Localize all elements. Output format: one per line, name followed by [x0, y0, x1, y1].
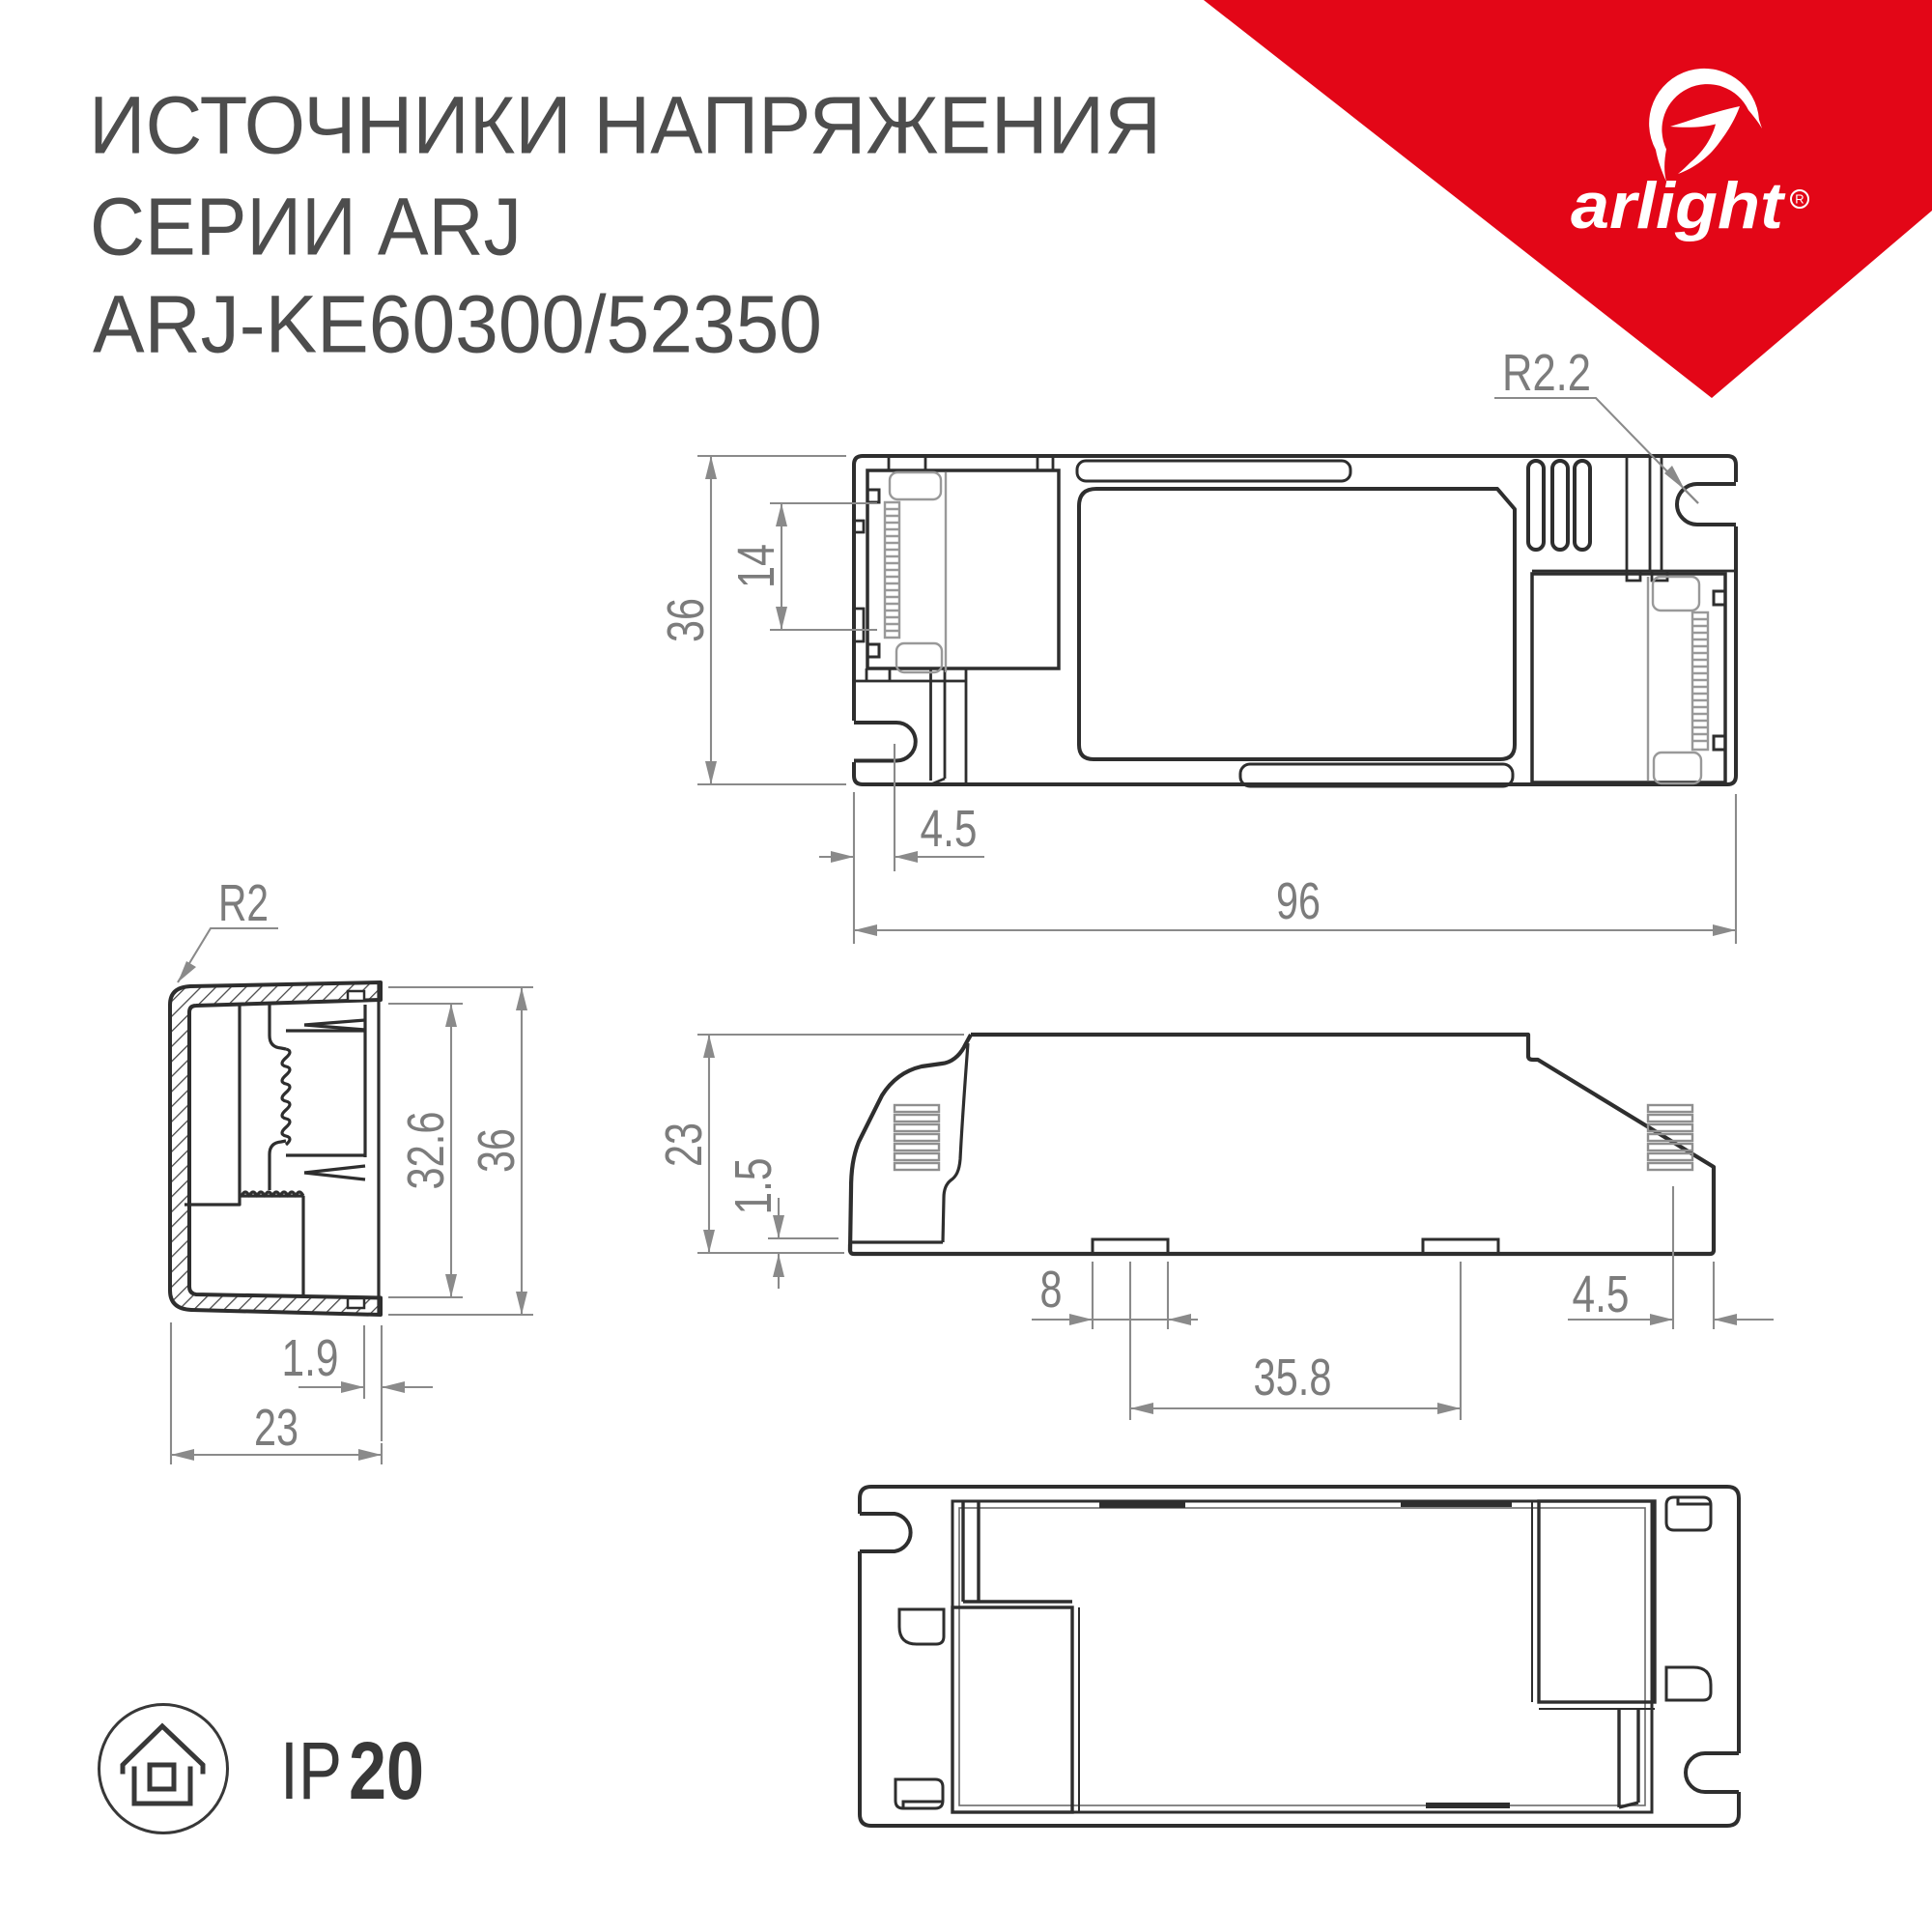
svg-text:ARJ-KE60300/52350: ARJ-KE60300/52350	[93, 279, 822, 370]
svg-text:35.8: 35.8	[1254, 1349, 1332, 1406]
svg-text:ИСТОЧНИКИ НАПРЯЖЕНИЯ: ИСТОЧНИКИ НАПРЯЖЕНИЯ	[89, 80, 1161, 171]
svg-text:4.5: 4.5	[1573, 1265, 1630, 1323]
svg-text:IP: IP	[280, 1725, 342, 1816]
svg-text:8: 8	[1040, 1261, 1063, 1319]
svg-text:R2: R2	[218, 874, 269, 932]
svg-text:32.6: 32.6	[397, 1112, 455, 1190]
svg-text:arlight: arlight	[1571, 169, 1785, 242]
svg-text:1.9: 1.9	[282, 1329, 339, 1387]
svg-text:СЕРИИ ARJ: СЕРИИ ARJ	[90, 182, 522, 272]
svg-text:R: R	[1795, 192, 1804, 207]
svg-text:23: 23	[254, 1399, 298, 1457]
svg-text:20: 20	[349, 1725, 424, 1816]
svg-text:14: 14	[727, 544, 785, 588]
svg-text:R2.2: R2.2	[1502, 344, 1591, 402]
svg-text:1.5: 1.5	[724, 1158, 782, 1215]
svg-text:96: 96	[1276, 872, 1321, 930]
svg-text:36: 36	[657, 598, 715, 642]
svg-text:36: 36	[468, 1128, 526, 1173]
svg-text:23: 23	[655, 1122, 713, 1167]
svg-text:4.5: 4.5	[921, 800, 978, 858]
